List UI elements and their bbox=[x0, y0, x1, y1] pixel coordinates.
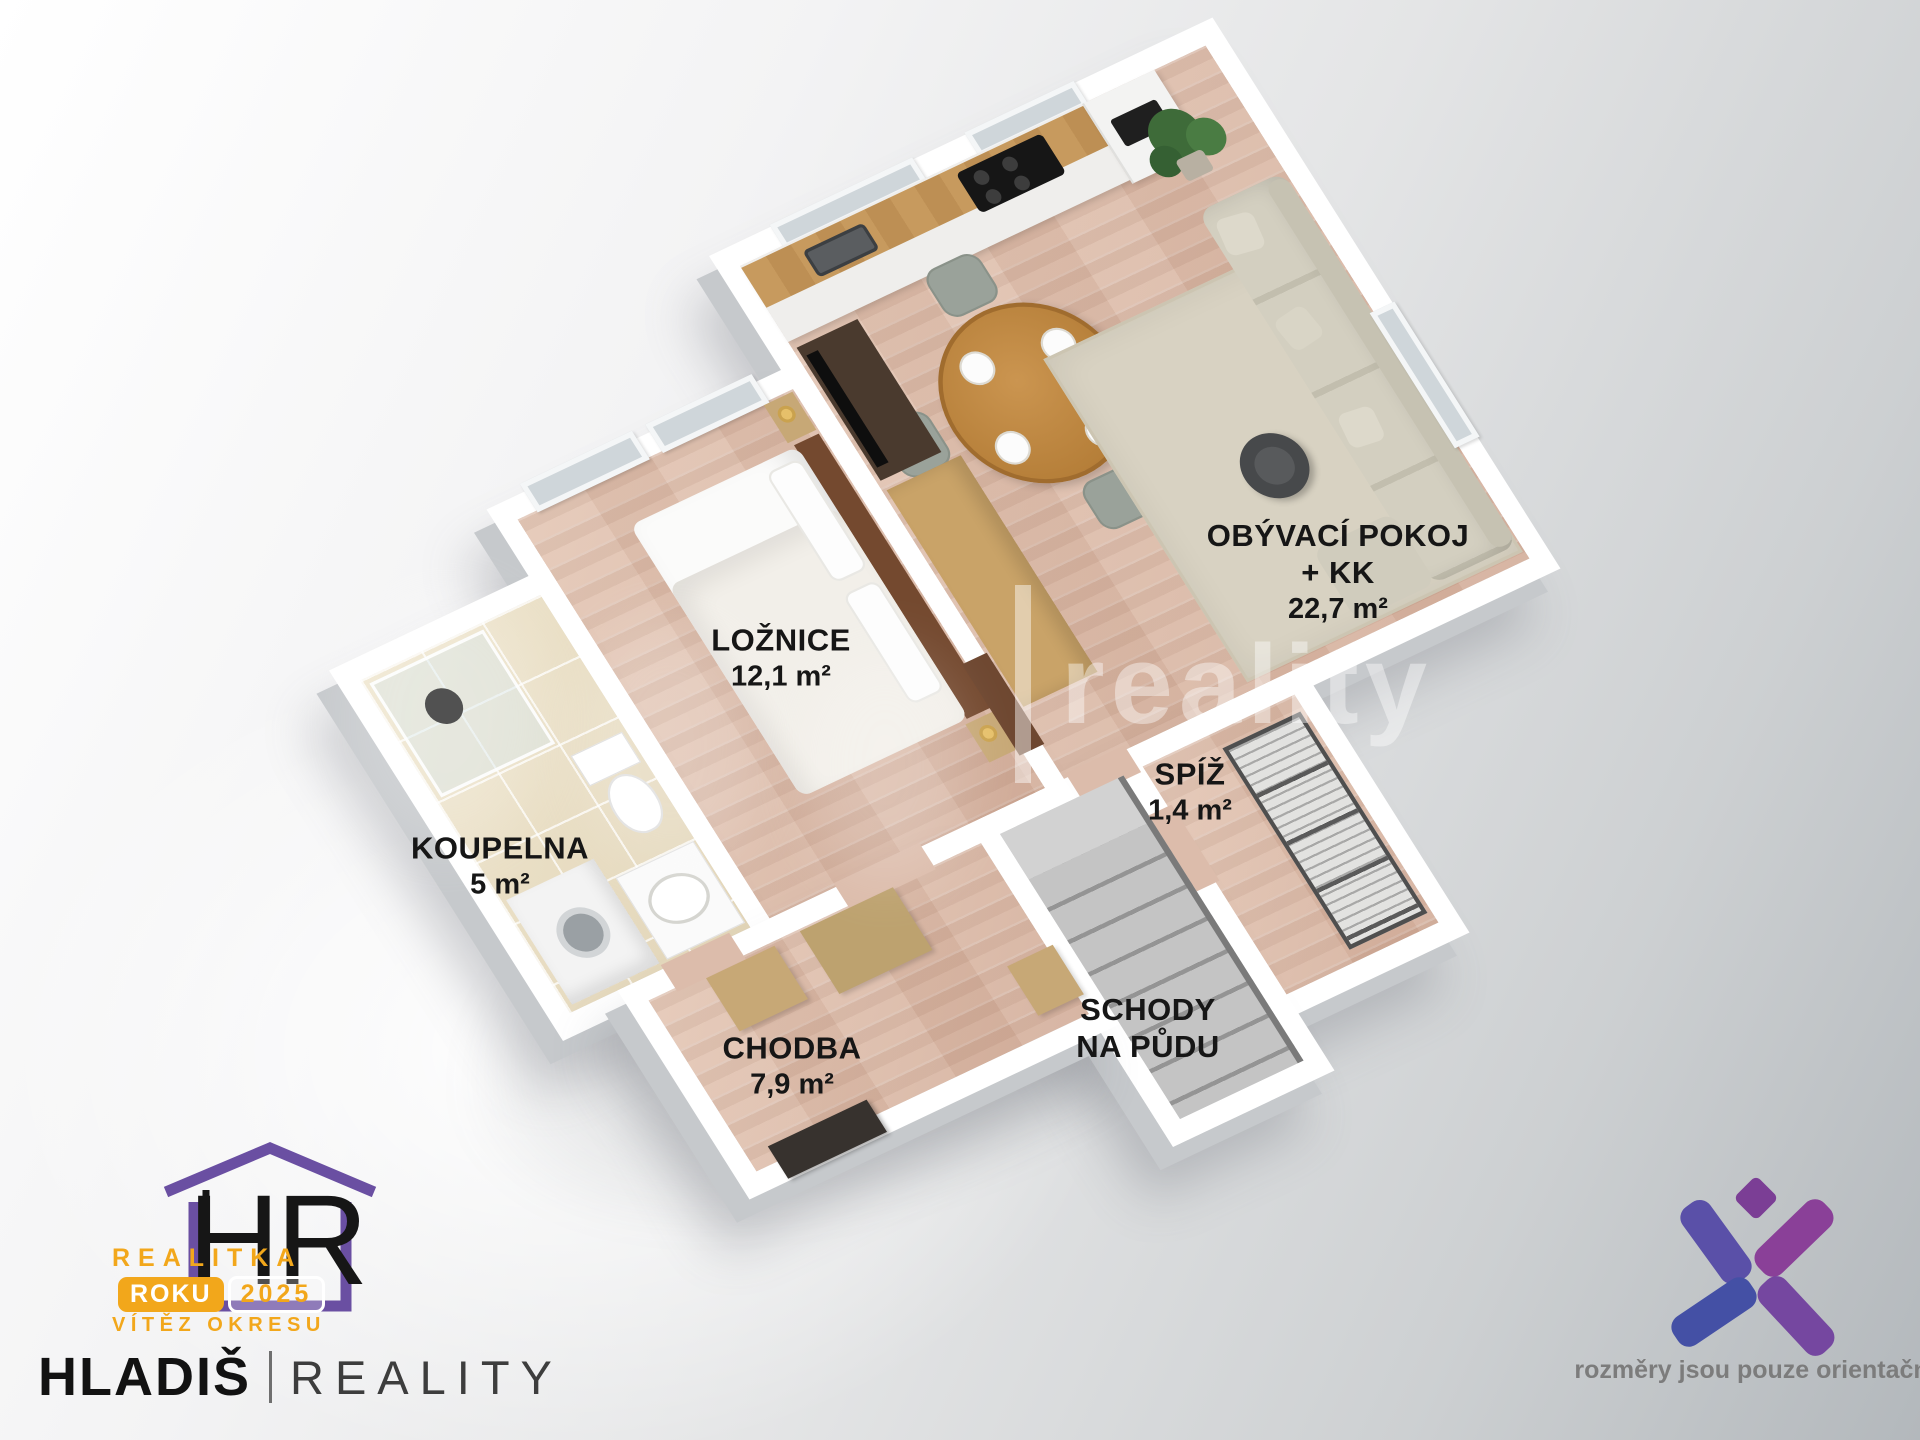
x-brand-logo bbox=[1668, 1176, 1843, 1371]
x-logo-icon bbox=[1668, 1176, 1840, 1361]
watermark-text: reality bbox=[1061, 620, 1433, 749]
floor-plan-render: reality LOŽNICE 12,1 m² OBÝVACÍ POKOJ + … bbox=[0, 0, 1920, 1440]
room-name: SCHODY bbox=[1076, 991, 1220, 1028]
room-name: KOUPELNA bbox=[411, 830, 589, 867]
room-area: 5 m² bbox=[411, 867, 589, 903]
room-name: CHODBA bbox=[722, 1030, 861, 1067]
room-area: 12,1 m² bbox=[711, 659, 851, 695]
room-area: 22,7 m² bbox=[1207, 591, 1470, 627]
agency-name: HLADIŠ bbox=[38, 1346, 251, 1408]
room-name: LOŽNICE bbox=[711, 622, 851, 659]
label-pantry: SPÍŽ 1,4 m² bbox=[1148, 756, 1232, 829]
room-name: SPÍŽ bbox=[1148, 756, 1232, 793]
room-name: OBÝVACÍ POKOJ bbox=[1207, 517, 1470, 554]
award-roku-2025: ROKU 2025 bbox=[118, 1276, 325, 1313]
award-realitka: REALITKA bbox=[112, 1244, 302, 1273]
label-bedroom: LOŽNICE 12,1 m² bbox=[711, 622, 851, 695]
agency-logotype: HLADIŠ REALITY bbox=[38, 1346, 563, 1408]
award-vitez-okresu: VÍTĚZ OKRESU bbox=[112, 1314, 326, 1337]
room-name-2: NA PŮDU bbox=[1076, 1028, 1220, 1065]
agency-divider-icon bbox=[269, 1351, 272, 1403]
watermark-blur bbox=[340, 590, 550, 850]
label-hallway: CHODBA 7,9 m² bbox=[722, 1030, 861, 1103]
label-living-kitchen: OBÝVACÍ POKOJ + KK 22,7 m² bbox=[1207, 517, 1470, 627]
room-area: 7,9 m² bbox=[722, 1067, 861, 1103]
label-bathroom: KOUPELNA 5 m² bbox=[411, 830, 589, 903]
room-name-2: + KK bbox=[1207, 554, 1470, 591]
disclaimer-text: rozměry jsou pouze orientační bbox=[1545, 1356, 1920, 1385]
award-roku-badge: ROKU bbox=[118, 1277, 224, 1312]
watermark-divider bbox=[1015, 585, 1031, 783]
award-year: 2025 bbox=[228, 1276, 326, 1313]
label-attic-stairs: SCHODY NA PŮDU bbox=[1076, 991, 1220, 1065]
agency-suffix: REALITY bbox=[290, 1350, 563, 1405]
room-area: 1,4 m² bbox=[1148, 793, 1232, 829]
